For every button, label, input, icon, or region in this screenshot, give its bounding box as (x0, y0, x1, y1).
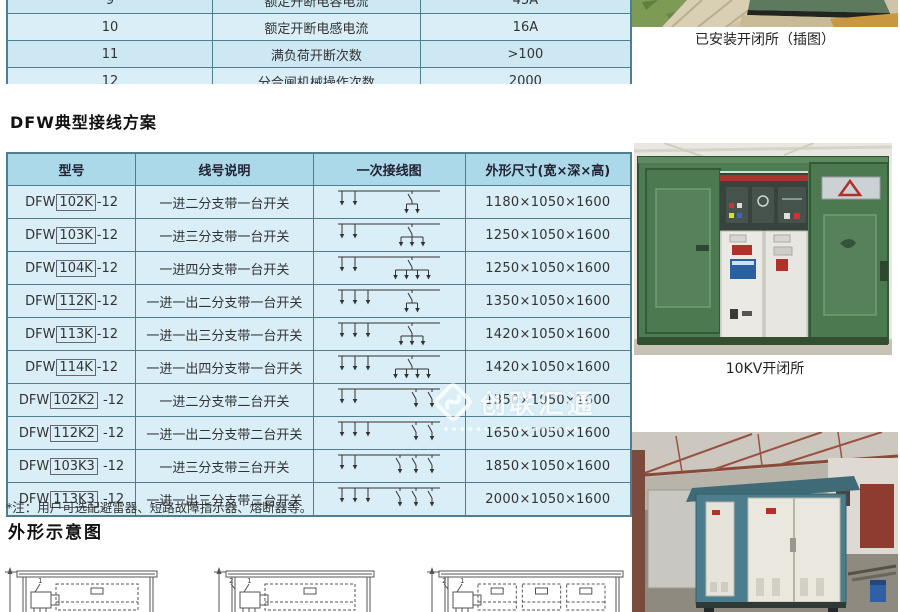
wiring-diagram-cell (313, 450, 465, 483)
one-line-diagram (324, 287, 454, 315)
model-prefix: DFW (19, 459, 49, 474)
spec-row-number: 10 (7, 14, 212, 41)
wiring-table-row: DFW103K3 -12 一进三分支带三台开关 1850×1050×1600 (7, 450, 631, 483)
wiring-table-header-row: 型号 线号说明 一次接线图 外形尺寸(宽×深×高) (7, 153, 631, 186)
model-prefix: DFW (25, 360, 55, 375)
model-prefix: DFW (25, 327, 55, 342)
dimensions-cell: 1420×1050×1600 (465, 351, 631, 384)
model-code-boxed: 113K (56, 326, 95, 343)
wiring-diagram-cell (313, 351, 465, 384)
spec-row-parameter: 额定开断电感电流 (212, 14, 420, 41)
wiring-table-row: DFW104K-12 一进四分支带一台开关 1250×1050×1600 (7, 252, 631, 285)
description-cell: 一进一出二分支带一台开关 (136, 285, 314, 318)
description-cell: 一进二分支带一台开关 (136, 186, 314, 219)
spec-row-parameter: 分合闸机械操作次数 (212, 68, 420, 85)
model-cell: DFW112K2 -12 (7, 417, 136, 450)
outline-drawing: 21 (426, 562, 627, 612)
wiring-diagram-cell (313, 252, 465, 285)
photo-installed-station (632, 0, 898, 27)
description-cell: 一进一出四分支带一台开关 (136, 351, 314, 384)
model-suffix: -12 (97, 228, 118, 243)
spec-table: 9 额定开断电容电流 45A 10 额定开断电感电流 16A 11 满负荷开断次… (6, 0, 632, 84)
model-prefix: DFW (25, 228, 55, 243)
dimensions-cell: 1350×1050×1600 (465, 285, 631, 318)
outline-drawings-strip: 12121 (0, 560, 632, 612)
header-diagram: 一次接线图 (313, 153, 465, 186)
model-suffix: -12 (99, 393, 124, 408)
photo-box-substation-image (632, 432, 898, 612)
svg-text:1: 1 (460, 577, 464, 585)
dimensions-cell: 1850×1050×1600 (465, 450, 631, 483)
description-cell: 一进二分支带二台开关 (136, 384, 314, 417)
one-line-diagram (324, 320, 454, 348)
spec-row-value: >100 (420, 41, 631, 68)
model-cell: DFW112K-12 (7, 285, 136, 318)
wiring-diagram-cell (313, 318, 465, 351)
wiring-diagram-cell (313, 219, 465, 252)
wiring-table-row: DFW103K-12 一进三分支带一台开关 1250×1050×1600 (7, 219, 631, 252)
one-line-diagram (324, 188, 454, 216)
model-prefix: DFW (25, 261, 55, 276)
model-suffix: -12 (99, 459, 124, 474)
dimensions-cell: 2000×1050×1600 (465, 483, 631, 517)
wiring-diagram-cell (313, 186, 465, 219)
svg-text:1: 1 (38, 577, 42, 585)
model-prefix: DFW (25, 294, 55, 309)
wiring-table-row: DFW113K-12 一进一出三分支带一台开关 1420×1050×1600 (7, 318, 631, 351)
model-code-boxed: 103K3 (50, 458, 98, 475)
one-line-diagram (324, 386, 454, 414)
description-cell: 一进三分支带三台开关 (136, 450, 314, 483)
wiring-table: 型号 线号说明 一次接线图 外形尺寸(宽×深×高) DFW102K-12 一进二… (6, 152, 632, 517)
one-line-diagram (324, 452, 454, 480)
one-line-diagram (324, 485, 454, 513)
outline-drawing: 1 (4, 562, 161, 612)
wiring-table-row: DFW112K2 -12 一进一出二分支带二台开关 1650×1050×1600 (7, 417, 631, 450)
model-cell: DFW114K-12 (7, 351, 136, 384)
wiring-section-title: DFW典型接线方案 (10, 109, 157, 133)
spec-table-row: 9 额定开断电容电流 45A (7, 0, 631, 14)
one-line-diagram (324, 419, 454, 447)
wiring-diagram-cell (313, 417, 465, 450)
photo-10kv-station-caption: 10KV开闭所 (632, 358, 898, 378)
spec-table-row: 10 额定开断电感电流 16A (7, 14, 631, 41)
header-description: 线号说明 (136, 153, 314, 186)
spec-row-parameter: 满负荷开断次数 (212, 41, 420, 68)
spec-row-value: 16A (420, 14, 631, 41)
spec-row-value: 2000 (420, 68, 631, 85)
photo-10kv-station (634, 143, 892, 355)
spec-table-row: 12 分合闸机械操作次数 2000 (7, 68, 631, 85)
spec-row-number: 9 (7, 0, 212, 14)
model-cell: DFW103K3 -12 (7, 450, 136, 483)
model-suffix: -12 (97, 294, 118, 309)
header-dimensions: 外形尺寸(宽×深×高) (465, 153, 631, 186)
model-cell: DFW102K-12 (7, 186, 136, 219)
one-line-diagram (324, 353, 454, 381)
wiring-diagram-cell (313, 483, 465, 517)
photo-installed-station-image (632, 0, 898, 27)
footnote: *注：用户可选配避雷器、短路故障指示器、熔断器等。 (6, 497, 312, 516)
one-line-diagram (324, 221, 454, 249)
model-cell: DFW113K-12 (7, 318, 136, 351)
one-line-diagram (324, 254, 454, 282)
spec-row-value: 45A (420, 0, 631, 14)
description-cell: 一进一出三分支带一台开关 (136, 318, 314, 351)
model-prefix: DFW (19, 393, 49, 408)
dimensions-cell: 1650×1050×1600 (465, 417, 631, 450)
wiring-diagram-cell (313, 285, 465, 318)
model-cell: DFW102K2 -12 (7, 384, 136, 417)
spec-table-row: 11 满负荷开断次数 >100 (7, 41, 631, 68)
wiring-diagram-cell (313, 384, 465, 417)
model-code-boxed: 112K2 (50, 425, 98, 442)
wiring-table-row: DFW102K-12 一进二分支带一台开关 1180×1050×1600 (7, 186, 631, 219)
wiring-table-row: DFW102K2 -12 一进二分支带二台开关 1350×1050×1600 (7, 384, 631, 417)
model-code-boxed: 114K (56, 359, 95, 376)
dimensions-cell: 1250×1050×1600 (465, 219, 631, 252)
model-suffix: -12 (97, 327, 118, 342)
wiring-table-row: DFW112K-12 一进一出二分支带一台开关 1350×1050×1600 (7, 285, 631, 318)
model-prefix: DFW (19, 426, 49, 441)
dimensions-cell: 1420×1050×1600 (465, 318, 631, 351)
description-cell: 一进一出二分支带二台开关 (136, 417, 314, 450)
model-code-boxed: 104K (56, 260, 95, 277)
model-suffix: -12 (97, 195, 118, 210)
model-suffix: -12 (97, 261, 118, 276)
model-suffix: -12 (97, 360, 118, 375)
model-code-boxed: 103K (56, 227, 95, 244)
model-code-boxed: 102K (56, 194, 95, 211)
model-cell: DFW104K-12 (7, 252, 136, 285)
model-cell: DFW103K-12 (7, 219, 136, 252)
dimensions-cell: 1180×1050×1600 (465, 186, 631, 219)
dimensions-cell: 1350×1050×1600 (465, 384, 631, 417)
spec-row-number: 11 (7, 41, 212, 68)
svg-text:1: 1 (247, 577, 251, 585)
description-cell: 一进三分支带一台开关 (136, 219, 314, 252)
model-prefix: DFW (25, 195, 55, 210)
header-model: 型号 (7, 153, 136, 186)
outline-drawing: 21 (213, 562, 378, 612)
spec-row-number: 12 (7, 68, 212, 85)
model-code-boxed: 112K (56, 293, 95, 310)
description-cell: 一进四分支带一台开关 (136, 252, 314, 285)
photo-installed-station-caption: 已安装开闭所（插图） (632, 29, 898, 49)
dimensions-cell: 1250×1050×1600 (465, 252, 631, 285)
spec-table-clipped: 9 额定开断电容电流 45A 10 额定开断电感电流 16A 11 满负荷开断次… (6, 0, 632, 84)
model-suffix: -12 (99, 426, 124, 441)
photo-box-substation (632, 432, 898, 612)
svg-text:2: 2 (442, 577, 446, 585)
photo-10kv-station-image (634, 143, 892, 355)
model-code-boxed: 102K2 (50, 392, 98, 409)
svg-text:2: 2 (229, 577, 233, 585)
spec-row-parameter: 额定开断电容电流 (212, 0, 420, 14)
outline-section-title: 外形示意图 (8, 518, 103, 543)
wiring-table-row: DFW114K-12 一进一出四分支带一台开关 1420×1050×1600 (7, 351, 631, 384)
